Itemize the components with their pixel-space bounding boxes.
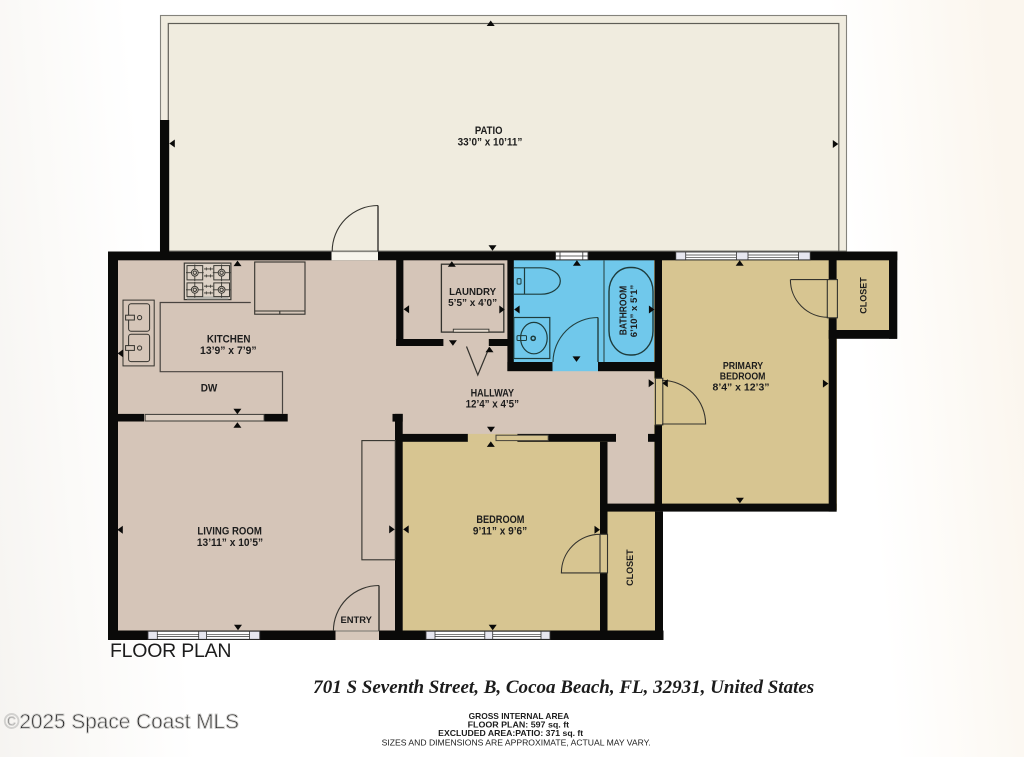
svg-text:©2025 Space Coast MLS: ©2025 Space Coast MLS <box>4 710 239 734</box>
svg-text:12’4” x 4’5”: 12’4” x 4’5” <box>466 399 519 411</box>
svg-text:KITCHEN: KITCHEN <box>207 334 251 346</box>
svg-text:701 S Seventh Street, B, Cocoa: 701 S Seventh Street, B, Cocoa Beach, FL… <box>313 677 814 698</box>
svg-text:13’9” x 7’9”: 13’9” x 7’9” <box>200 345 257 357</box>
svg-text:LIVING ROOM: LIVING ROOM <box>197 525 262 537</box>
svg-text:6’10” x 5’1”: 6’10” x 5’1” <box>629 285 640 338</box>
svg-text:HALLWAY: HALLWAY <box>471 387 514 399</box>
svg-text:BEDROOM: BEDROOM <box>476 514 524 526</box>
svg-text:FLOOR PLAN: FLOOR PLAN <box>110 640 232 662</box>
svg-text:BATHROOM: BATHROOM <box>619 286 630 336</box>
svg-text:5’5” x 4’0”: 5’5” x 4’0” <box>448 298 497 309</box>
svg-text:PRIMARY: PRIMARY <box>723 361 763 372</box>
svg-text:13’11” x 10’5”: 13’11” x 10’5” <box>197 537 263 549</box>
svg-text:33’0” x 10’11”: 33’0” x 10’11” <box>458 136 523 148</box>
svg-text:PATIO: PATIO <box>475 125 503 137</box>
svg-text:SIZES AND DIMENSIONS ARE APPRO: SIZES AND DIMENSIONS ARE APPROXIMATE, AC… <box>382 737 651 747</box>
svg-text:CLOSET: CLOSET <box>859 277 870 314</box>
svg-text:ENTRY: ENTRY <box>340 615 372 626</box>
svg-text:CLOSET: CLOSET <box>625 549 636 586</box>
svg-text:BEDROOM: BEDROOM <box>720 372 766 383</box>
svg-text:LAUNDRY: LAUNDRY <box>449 287 496 298</box>
svg-text:8’4” x 12’3”: 8’4” x 12’3” <box>713 382 770 393</box>
svg-text:9’11” x 9’6”: 9’11” x 9’6” <box>473 526 527 538</box>
svg-text:DW: DW <box>201 382 218 394</box>
